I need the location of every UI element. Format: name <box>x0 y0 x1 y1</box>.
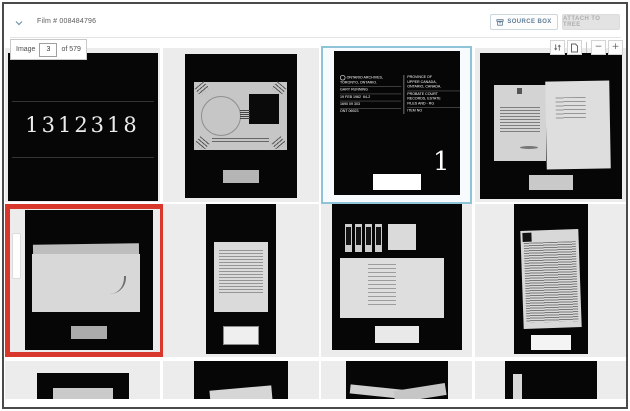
zoom-in-button[interactable]: + <box>608 40 623 55</box>
thumbnail-cell[interactable] <box>5 361 160 399</box>
film-scratch-line <box>12 157 154 158</box>
thumbnail-cell[interactable] <box>475 361 626 399</box>
tools-divider <box>586 42 587 53</box>
calibration-caption <box>212 138 269 142</box>
image-label: Image <box>16 46 35 53</box>
film-label-rect <box>71 326 107 339</box>
manuscript-page <box>520 229 581 329</box>
partial-document <box>393 383 446 399</box>
film-label-rect <box>223 326 259 345</box>
source-box-icon <box>496 18 504 26</box>
stamp <box>522 233 531 242</box>
film-frame-manuscript <box>514 204 588 354</box>
file-spine <box>365 224 372 252</box>
chevron-down-icon[interactable] <box>15 19 23 27</box>
image-total-label: of 579 <box>61 46 80 53</box>
film-label-rect <box>531 335 571 350</box>
dense-handwriting <box>523 241 578 323</box>
swap-vertical-icon <box>553 43 562 52</box>
image-navigator: Image of 579 <box>10 39 87 60</box>
handwritten-card <box>545 80 611 169</box>
film-frame-partial <box>505 361 597 399</box>
film-frame-folder-back <box>25 210 153 350</box>
calibration-square <box>249 94 279 124</box>
file-spine <box>375 224 382 252</box>
film-frame-title-card: ONTARIO ARCHIVES, TORONTO, ONTARIO. GARY… <box>334 51 460 195</box>
film-number-label: Film # 008484796 <box>37 18 96 25</box>
corner-text-block <box>195 136 210 151</box>
thumbnail-cell[interactable] <box>321 204 472 357</box>
film-frame-number-card: 1312318 <box>8 53 158 201</box>
file-spine <box>355 224 362 252</box>
film-frame-letter-and-card <box>480 53 622 199</box>
typed-letter <box>494 85 546 161</box>
compare-images-button[interactable] <box>550 40 565 55</box>
partial-folder <box>53 388 113 399</box>
vertical-scrollbar-thumb[interactable] <box>12 233 21 279</box>
folder-body <box>32 254 140 312</box>
thumbnail-cell[interactable] <box>163 204 319 357</box>
calibration-text <box>240 110 250 120</box>
thumbnail-cell[interactable] <box>475 48 626 202</box>
corner-text-block <box>272 136 287 151</box>
source-box-button[interactable]: SOURCE BOX <box>490 14 558 30</box>
thumbnail-cell[interactable]: 1312318 <box>5 48 160 202</box>
thumbnail-cell[interactable] <box>163 361 319 399</box>
film-frame-partial <box>194 361 288 399</box>
partial-spine <box>513 374 522 399</box>
film-reel-number: 1312318 <box>8 113 158 137</box>
calibration-target <box>194 82 287 150</box>
pen-mark <box>108 276 126 294</box>
file-spines <box>345 224 416 252</box>
single-image-view-button[interactable] <box>567 40 582 55</box>
document-icon <box>570 43 579 53</box>
film-frame-calibration-card <box>185 54 297 198</box>
handwriting <box>219 250 263 294</box>
calibration-circle <box>201 96 241 136</box>
source-box-label: SOURCE BOX <box>507 19 551 25</box>
corner-text-block <box>195 81 210 96</box>
handwritten-letter <box>214 242 268 312</box>
zoom-out-button[interactable]: − <box>591 40 606 55</box>
thumbnail-cell[interactable] <box>163 48 319 202</box>
thumbnail-cell-highlighted-red[interactable] <box>5 204 165 357</box>
thumbnail-cell[interactable] <box>475 204 626 357</box>
film-scratch-line <box>12 101 154 102</box>
partial-folder <box>209 385 272 399</box>
item-number: 1 <box>433 149 450 175</box>
title-card-text: ONTARIO ARCHIVES, TORONTO, ONTARIO. GARY… <box>340 75 460 114</box>
film-label-rect <box>529 175 573 190</box>
film-label-rect <box>375 326 419 343</box>
film-label-rect <box>373 174 421 190</box>
film-frame-partial <box>346 361 448 399</box>
film-frame-estate-files <box>332 204 462 350</box>
open-folder <box>340 258 444 318</box>
attach-to-tree-label: ATTACH TO TREE <box>563 16 619 28</box>
thumbnail-cell[interactable] <box>321 361 472 399</box>
film-header-bar: Film # 008484796 SOURCE BOX ATTACH TO TR… <box>10 11 621 38</box>
attach-to-tree-button[interactable]: ATTACH TO TREE <box>562 14 620 30</box>
film-label-rect <box>223 170 259 183</box>
film-viewer-page: Film # 008484796 SOURCE BOX ATTACH TO TR… <box>0 0 630 411</box>
image-number-input[interactable] <box>39 43 57 57</box>
film-frame-partial <box>37 373 129 399</box>
thumbnail-cell-selected[interactable]: ONTARIO ARCHIVES, TORONTO, ONTARIO. GARY… <box>321 46 472 204</box>
letterhead-crest <box>517 88 522 94</box>
handwriting <box>368 264 396 308</box>
handwriting <box>555 97 585 120</box>
typed-text <box>500 107 540 133</box>
file-spine <box>345 224 352 252</box>
viewer-tools: − + <box>550 40 623 55</box>
file-card <box>388 224 416 250</box>
signature <box>520 146 538 149</box>
film-frame-letter <box>206 204 276 354</box>
